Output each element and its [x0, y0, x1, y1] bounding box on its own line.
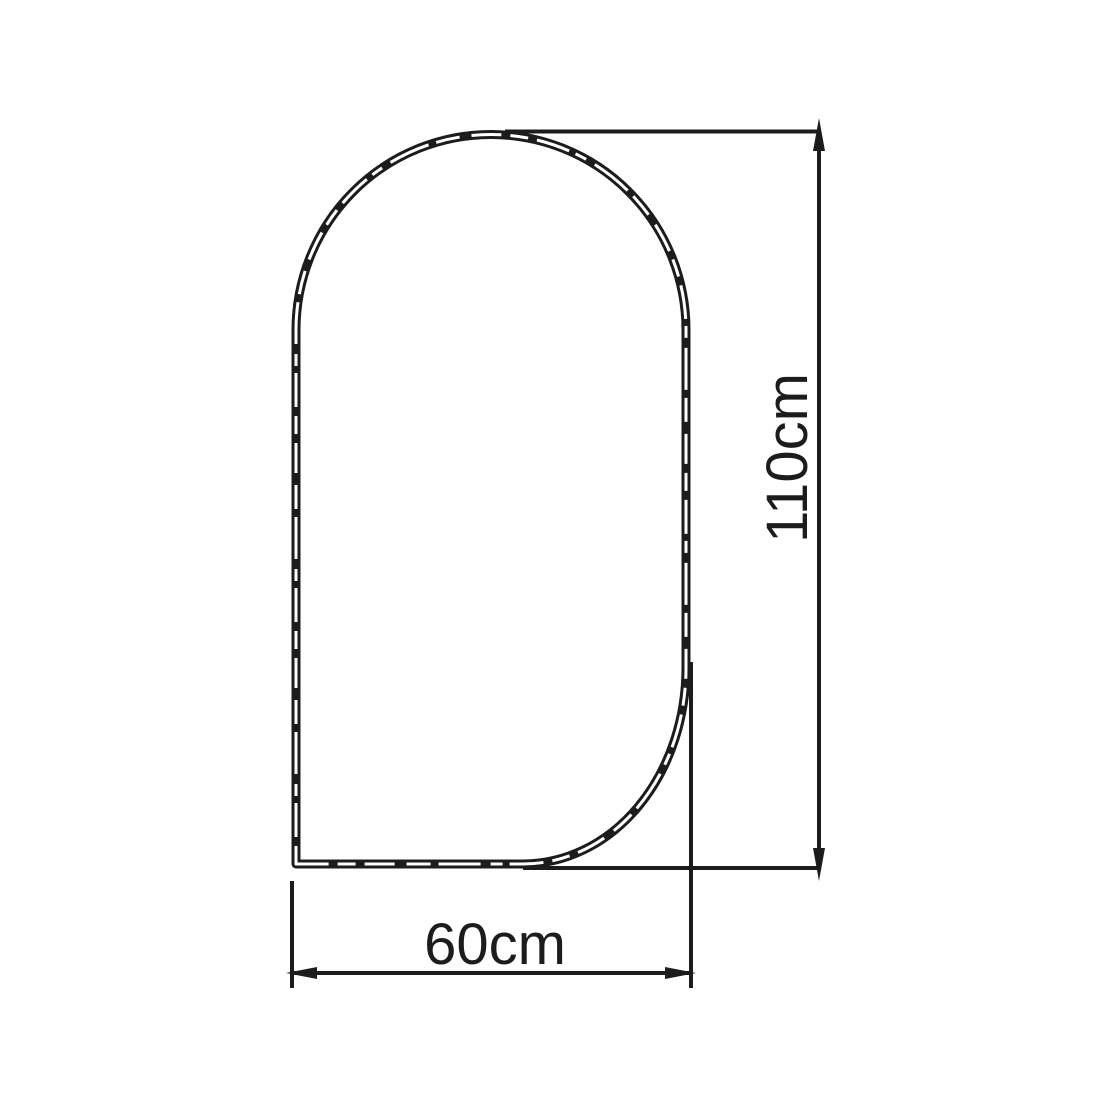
panel-outline-inner-gap	[296, 135, 686, 865]
height-arrow-down-icon	[813, 848, 825, 881]
height-dimension-label: 110cm	[759, 338, 817, 578]
width-dimension-label: 60cm	[375, 916, 615, 974]
diagram-canvas: 110cm 60cm	[0, 0, 1100, 1100]
panel-outline	[296, 135, 686, 865]
height-arrow-up-icon	[813, 118, 825, 151]
